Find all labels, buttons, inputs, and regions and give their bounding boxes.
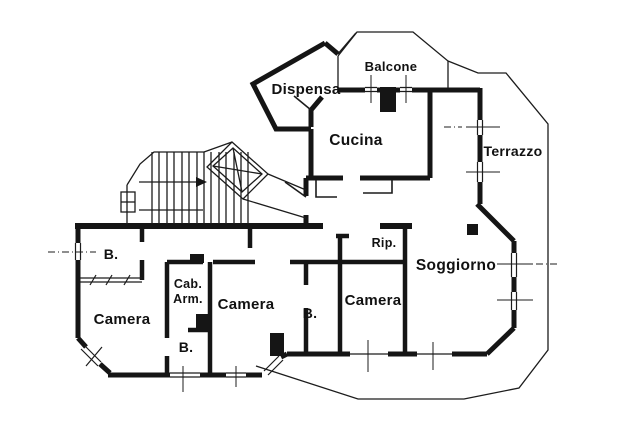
room-label-terrazzo: Terrazzo — [484, 143, 543, 159]
room-label-balcone: Balcone — [365, 59, 418, 74]
room-label-bagno-center: B. — [179, 339, 194, 355]
room-label-cucina: Cucina — [329, 132, 383, 149]
stair-direction-arrow — [139, 182, 203, 210]
room-label-camera-center: Camera — [218, 296, 275, 313]
room-label-soggiorno: Soggiorno — [416, 257, 496, 274]
room-label-dispensa: Dispensa — [271, 81, 340, 98]
room-label-bagno-right: B. — [303, 305, 318, 321]
floor-plan: Dispensa Balcone Cucina Terrazzo Soggior… — [0, 0, 631, 425]
arrow-head-icon — [196, 177, 207, 187]
room-label-bagno-top-left: B. — [104, 246, 119, 262]
wall-pillar-soggiorno — [467, 224, 478, 235]
floor-plan-drawing: Dispensa Balcone Cucina Terrazzo Soggior… — [0, 0, 631, 425]
room-label-rip: Rip. — [372, 236, 397, 250]
elevator-icon — [207, 142, 306, 218]
room-label-camera-left: Camera — [94, 311, 151, 328]
wall-pillar-bottom — [270, 333, 284, 356]
room-label-arm: Arm. — [173, 292, 203, 306]
wall-pillar-balcony — [380, 87, 396, 112]
room-label-cab: Cab. — [174, 277, 202, 291]
windows — [48, 75, 558, 392]
staircase — [121, 142, 248, 224]
room-label-camera-right: Camera — [345, 292, 402, 309]
stair-treads — [152, 152, 248, 224]
